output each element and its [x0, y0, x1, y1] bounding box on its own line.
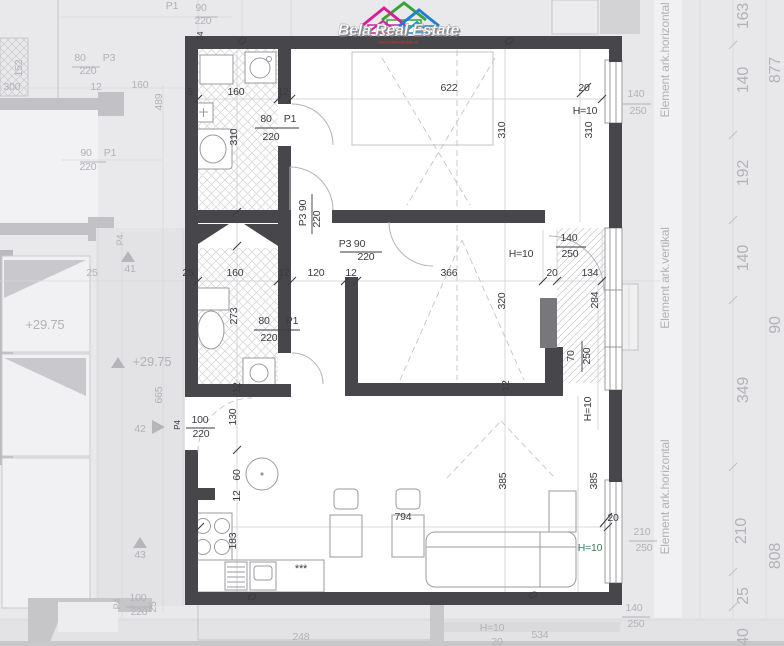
- faded-wall-cap: [98, 92, 124, 116]
- wall-right-upper: [609, 123, 622, 228]
- dim-label: 25: [86, 267, 98, 279]
- dim-label: 877: [767, 57, 784, 83]
- dim-label: 210: [733, 518, 750, 544]
- wall-living-left: [345, 277, 358, 396]
- dim-label: 163: [735, 3, 752, 29]
- dim-label: 130: [227, 408, 239, 425]
- dim-label: 12: [500, 380, 512, 392]
- bathroom2-sink: [243, 358, 275, 388]
- dim-label: 100: [192, 414, 209, 426]
- dim-label: 284: [589, 291, 601, 308]
- dim-label: 12: [231, 490, 243, 502]
- dim-label: 140: [628, 88, 645, 100]
- dim-label: ***: [295, 563, 308, 575]
- boiler: [200, 55, 233, 84]
- dim-label: H=10: [582, 396, 594, 421]
- toilet-bowl: [198, 311, 224, 349]
- dim-label: P3 90: [297, 199, 309, 226]
- dim-label: 80: [74, 52, 86, 64]
- dim-label: 12: [277, 86, 289, 98]
- faded-block: [552, 0, 598, 34]
- dim-label: 622: [441, 82, 458, 94]
- dim-label: P4: [115, 235, 125, 246]
- dim-label: 20: [607, 512, 619, 524]
- dim-label: 24: [196, 31, 205, 40]
- dim-label: 60: [231, 469, 243, 481]
- dim-label: 90: [195, 2, 207, 14]
- faded-wall: [0, 223, 92, 235]
- dim-label: 12: [345, 267, 357, 279]
- dim-label: 160: [228, 86, 245, 98]
- wall-bath1-right-b: [278, 146, 291, 223]
- wall-bath2-right: [278, 223, 291, 353]
- dim-label: 794: [395, 511, 412, 523]
- dim-label: H=10: [480, 622, 505, 634]
- dim-label: 489: [153, 93, 165, 110]
- dim-label: 220: [195, 15, 212, 27]
- dim-label: 310: [228, 128, 240, 145]
- dim-label: 140: [626, 602, 643, 614]
- dim-label: 12: [278, 267, 290, 279]
- dim-label: +29.75: [133, 354, 172, 369]
- dim-label: 250: [636, 542, 653, 554]
- dim-label: P1: [284, 113, 297, 125]
- dim-label: 100: [130, 592, 147, 604]
- dim-label: H=10: [509, 248, 534, 260]
- table-center: [260, 472, 263, 475]
- faded-stair-inner: [58, 602, 118, 632]
- floor-plan-page: 16012562220H=1031031031080P122024P3 9022…: [0, 0, 784, 646]
- dim-label: 120: [308, 267, 325, 279]
- dim-label: H=10: [573, 105, 598, 117]
- wall-right-stub-bottom: [609, 583, 622, 605]
- floor-plan: 16012562220H=1031031031080P122024P3 9022…: [0, 0, 784, 646]
- dim-label: 80: [258, 315, 270, 327]
- dim-label: 349: [735, 377, 752, 403]
- dim-label: 20: [491, 636, 503, 646]
- dim-label: P3: [103, 52, 116, 64]
- bottom-band: [0, 641, 784, 646]
- dim-label: 25: [147, 601, 159, 613]
- dim-label: 220: [80, 161, 97, 173]
- dim-label: 220: [311, 210, 323, 227]
- dim-label: 273: [228, 307, 240, 324]
- dim-label: 385: [588, 472, 600, 489]
- dim-label: 665: [153, 386, 165, 403]
- wall-left-mid: [185, 223, 198, 384]
- dim-label: 40: [735, 628, 752, 646]
- dim-label: 20: [578, 82, 590, 94]
- dim-label: Element ark.horizontal: [658, 440, 672, 555]
- dim-label: 183: [227, 532, 239, 549]
- dim-label: P1: [104, 147, 117, 159]
- dim-label: 220: [261, 332, 278, 344]
- dim-label: 90: [80, 147, 92, 159]
- dim-label: 366: [441, 267, 458, 279]
- wall-living-bottom: [345, 383, 563, 396]
- dim-label: 220: [358, 251, 375, 263]
- dim-label: 5: [187, 86, 193, 98]
- dim-label: 250: [630, 105, 647, 117]
- wall-left-lower: [185, 450, 198, 592]
- dim-label: 320: [496, 292, 508, 309]
- dim-label: 12: [90, 81, 102, 93]
- dim-label: 310: [496, 121, 508, 138]
- dim-label: 70: [565, 350, 577, 362]
- dim-label: 192: [735, 160, 752, 186]
- faded-room: [2, 458, 90, 608]
- dim-label: 90: [767, 316, 784, 334]
- dim-label: 25: [182, 267, 194, 279]
- dim-label: 310: [583, 121, 595, 138]
- dim-label: 134: [582, 267, 599, 279]
- logo-title: Bela Real Estate: [338, 22, 460, 39]
- wall-right-stub-top: [609, 49, 622, 62]
- dim-label: 20: [546, 267, 558, 279]
- dim-label: 80: [260, 113, 272, 125]
- dim-label: 160: [132, 79, 149, 91]
- dim-label: 140: [735, 67, 752, 93]
- dim-label: 250: [581, 347, 593, 364]
- dim-label: Element ark.horizontal: [658, 3, 672, 118]
- faded-wall: [0, 98, 102, 110]
- dim-label: 534: [532, 629, 549, 641]
- dim-label: 220: [131, 606, 148, 618]
- wall-entry-return: [185, 488, 215, 500]
- dim-label: 12: [231, 382, 243, 394]
- dim-label: Element ark.vertikal: [658, 227, 672, 328]
- wall-hall-right: [332, 210, 545, 223]
- faded-wall: [430, 600, 444, 644]
- dim-label: 43: [134, 549, 146, 561]
- dim-label: 42: [134, 423, 146, 435]
- dim-label: 140: [735, 245, 752, 271]
- dim-label: P4: [112, 599, 122, 610]
- wall-right-lower: [609, 390, 622, 482]
- dim-label: 385: [497, 472, 509, 489]
- wall-left-upper: [185, 36, 198, 223]
- dim-label: 220: [263, 131, 280, 143]
- dim-label: P4: [173, 420, 182, 430]
- dim-label: 248: [293, 631, 310, 643]
- dim-label: H=10: [578, 542, 603, 554]
- window: [605, 60, 622, 123]
- dim-label: 210: [634, 526, 651, 538]
- logo-subtitle: www.belarealestate.al: [378, 40, 418, 45]
- dim-label: +29.75: [26, 317, 65, 332]
- dim-label: 300: [4, 81, 21, 93]
- dim-label: 160: [227, 267, 244, 279]
- wall-bottom: [185, 592, 622, 605]
- faded-block: [600, 0, 640, 34]
- wall-hall-left: [185, 210, 287, 223]
- dim-label: 140: [561, 232, 578, 244]
- dim-label: P3 90: [339, 238, 366, 250]
- dim-label: P1: [286, 315, 299, 327]
- dim-label: 808: [767, 543, 784, 569]
- dim-label: 41: [124, 263, 136, 275]
- loggia-glazing: [605, 228, 622, 390]
- dim-label: 220: [80, 65, 97, 77]
- window: [605, 480, 622, 583]
- dim-label: 152: [13, 59, 25, 76]
- dim-label: 25: [735, 587, 752, 605]
- dim-label: 250: [628, 618, 645, 630]
- dim-label: P1: [166, 0, 179, 12]
- wall-loggia: [545, 347, 563, 387]
- pier: [540, 298, 557, 348]
- dim-label: 220: [193, 428, 210, 440]
- toilet-tank: [194, 288, 229, 310]
- dim-label: 250: [562, 248, 579, 260]
